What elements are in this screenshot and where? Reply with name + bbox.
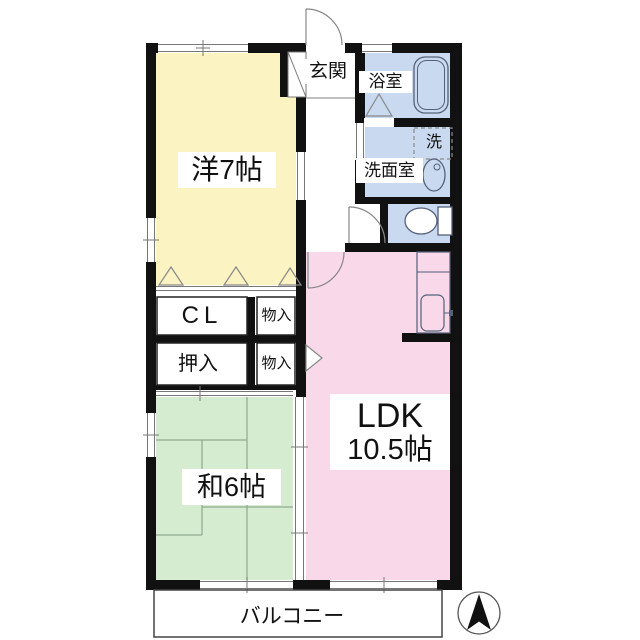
wall-closet-divider — [247, 297, 255, 385]
wall-entrance-left — [280, 43, 288, 97]
ldk-label: LDK 10.5帖 — [330, 394, 450, 470]
door-ldk-gap — [306, 243, 345, 252]
floorplan-drawing — [0, 0, 640, 640]
closet-cl-label: CL — [168, 302, 236, 330]
partition-japanese-ldk — [291, 397, 308, 580]
entrance-label: 玄関 — [304, 59, 352, 84]
washroom-label: 洗面室 — [356, 158, 423, 183]
window-top-bath — [362, 43, 392, 53]
laundry-label: 洗 — [423, 132, 445, 154]
wall-closet-mid — [150, 335, 296, 343]
storage-upper-label: 物入 — [258, 306, 295, 326]
storage-lower-label: 物入 — [258, 354, 295, 374]
closet-track-west — [156, 285, 296, 292]
wall-washroom-toilet — [355, 197, 462, 204]
entrance-door-arc-icon — [306, 9, 342, 45]
western-room-label: 洋7帖 — [178, 152, 276, 188]
balcony-label: バルコニー — [228, 603, 356, 631]
door-west-room — [296, 152, 306, 200]
japanese-room-label: 和6帖 — [182, 469, 281, 505]
wall-left — [146, 43, 156, 590]
door-washroom — [355, 123, 365, 160]
oshiire-label: 押入 — [166, 352, 230, 376]
wall-toilet-left — [380, 204, 388, 244]
floorplan-canvas: 洋7帖 玄関 浴室 洗 洗面室 CL 物入 押入 物入 LDK 10.5帖 和6… — [0, 0, 640, 640]
toilet-icon — [405, 207, 452, 235]
compass-north-icon — [458, 592, 500, 634]
door-bathroom-gap — [364, 118, 394, 127]
wall-kitchen-stub — [402, 333, 462, 342]
ldk-label-line2: 10.5帖 — [347, 435, 432, 465]
entrance-door-gap — [306, 43, 345, 53]
ldk-label-line1: LDK — [357, 399, 423, 435]
toilet-door-arc-icon — [349, 207, 385, 243]
bathroom-label: 浴室 — [359, 71, 412, 93]
